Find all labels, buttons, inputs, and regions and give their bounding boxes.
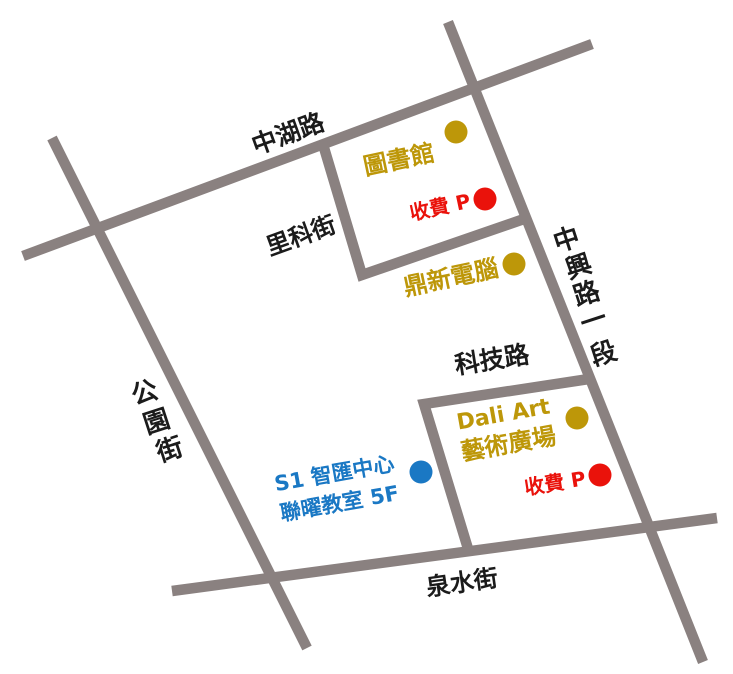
map-canvas: 中湖路 里科街 科技路 泉水街 公 園 街 中 興 路 一 段 圖書館 收費 P… <box>0 0 733 674</box>
parking-north-marker-dot <box>474 188 497 211</box>
s1-center-marker-dot <box>410 461 433 484</box>
dingxin-marker-dot <box>503 253 526 276</box>
parking-south-marker-dot <box>589 464 612 487</box>
dali-art-marker-dot <box>566 407 589 430</box>
roads-layer <box>0 0 733 674</box>
library-marker-dot <box>445 121 468 144</box>
road-gongyuan <box>52 138 307 648</box>
